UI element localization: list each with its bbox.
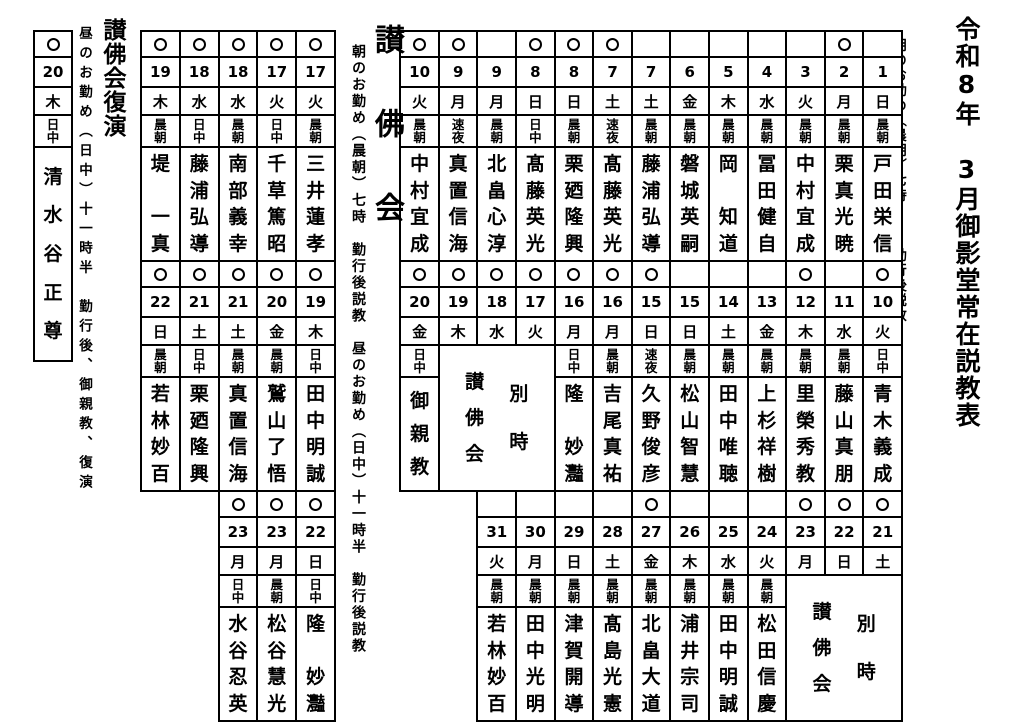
- date-cell: 15: [671, 288, 708, 316]
- sanbutsukai-note: 朝のお勤め（晨朝）七時 勤行後説教 昼のお勤め（日中）十一時半 勤行後説教: [348, 44, 368, 714]
- circle-icon: [838, 38, 851, 51]
- char: 夜: [645, 361, 658, 375]
- char: 井: [680, 641, 699, 661]
- service-time-cell: 晨朝: [710, 116, 747, 146]
- page-title: 令和8年 3月御影堂常在説教表: [948, 16, 984, 716]
- char: 冨: [757, 154, 776, 174]
- duty-marker-cell: [749, 32, 786, 56]
- date-cell: 23: [220, 518, 257, 546]
- schedule-block: 21土22日23月24火晨朝松田信慶25水晨朝田中明誠26木晨朝浦井宗司27金晨…: [476, 490, 903, 722]
- char: 日: [47, 118, 60, 132]
- service-time-cell: 日中: [35, 116, 71, 146]
- char: 畠: [487, 181, 506, 201]
- circle-icon: [529, 38, 542, 51]
- char: 唯: [719, 437, 738, 457]
- char: 夜: [606, 131, 619, 145]
- date-cell: 5: [710, 58, 747, 86]
- date-cell: 17: [297, 58, 334, 86]
- preacher-name-cell: 隆 妙灩: [297, 608, 334, 720]
- circle-icon: [645, 498, 658, 511]
- schedule-block: 19木日中田中明誠20金晨朝鷲山了悟21土晨朝真置信海21土日中栗廼隆興22日晨…: [140, 260, 336, 492]
- date-cell: 24: [749, 518, 786, 546]
- char: 英: [680, 207, 699, 227]
- char: 晨: [761, 118, 774, 132]
- char: 松: [267, 614, 286, 634]
- weekday-cell: 土: [181, 318, 218, 344]
- service-time-cell: 日中: [401, 346, 438, 376]
- char: 久: [642, 384, 661, 404]
- weekday-cell: 日: [671, 318, 708, 344]
- char: 別: [509, 384, 528, 404]
- preacher-name-cell: 吉尾真祐: [594, 378, 631, 490]
- service-time-cell: 晨朝: [594, 346, 631, 376]
- weekday-cell: 月: [517, 548, 554, 574]
- char: 晨: [799, 348, 812, 362]
- char: 朝: [722, 131, 735, 145]
- char: 晨: [722, 118, 735, 132]
- date-cell: 20: [401, 288, 438, 316]
- char: 会: [465, 444, 484, 464]
- char: 真: [229, 384, 248, 404]
- preacher-name-cell: 中村宜成: [787, 148, 824, 260]
- merged-event-cell: 別時讃佛会: [440, 346, 554, 490]
- char: 晨: [529, 578, 542, 592]
- weekday-cell: 火: [258, 88, 295, 114]
- duty-marker-cell: [710, 262, 747, 286]
- service-time-cell: 晨朝: [826, 116, 863, 146]
- weekday-cell: 日: [633, 318, 670, 344]
- char: 晨: [645, 118, 658, 132]
- char: 彦: [642, 464, 661, 484]
- service-time-cell: 日中: [258, 116, 295, 146]
- weekday-cell: 水: [710, 548, 747, 574]
- duty-marker-cell: [478, 32, 515, 56]
- char: 田: [757, 181, 776, 201]
- char: 中: [529, 131, 542, 145]
- service-time-cell: 日中: [297, 576, 334, 606]
- char: 中: [232, 591, 245, 605]
- char: 中: [193, 131, 206, 145]
- duty-marker-cell: [142, 32, 179, 56]
- char: 晨: [568, 578, 581, 592]
- char: 晨: [271, 578, 284, 592]
- char: 磐: [680, 154, 699, 174]
- preacher-name-cell: 三井蓮孝: [297, 148, 334, 260]
- duty-marker-cell: [594, 492, 631, 516]
- char: 朝: [529, 591, 542, 605]
- char: 朝: [309, 131, 322, 145]
- char: 秀: [796, 437, 815, 457]
- circle-icon: [452, 38, 465, 51]
- char: 佛: [812, 638, 831, 658]
- duty-marker-cell: [478, 262, 515, 286]
- service-time-cell: 晨朝: [258, 576, 295, 606]
- preacher-name-cell: 若林妙百: [478, 608, 515, 720]
- date-cell: 3: [787, 58, 824, 86]
- char: 置: [229, 411, 248, 431]
- char: 髙: [603, 614, 622, 634]
- service-time-cell: 晨朝: [556, 116, 593, 146]
- date-cell: 13: [749, 288, 786, 316]
- weekday-cell: 月: [478, 88, 515, 114]
- merged-event-cell: 別時讃佛会: [787, 576, 901, 720]
- char: 祥: [757, 437, 776, 457]
- char: 朋: [835, 464, 854, 484]
- char: 朝: [491, 131, 504, 145]
- char: 朝: [838, 361, 851, 375]
- duty-marker-cell: [297, 32, 334, 56]
- char: 尾: [603, 411, 622, 431]
- char: 晨: [876, 118, 889, 132]
- char: 親: [410, 424, 429, 444]
- service-time-cell: 晨朝: [671, 576, 708, 606]
- preacher-name-cell: 青木義成: [864, 378, 901, 490]
- circle-icon: [47, 38, 60, 51]
- weekday-cell: 水: [478, 318, 515, 344]
- duty-marker-cell: [671, 262, 708, 286]
- char: 千: [267, 154, 286, 174]
- char: 海: [229, 464, 248, 484]
- char: 三: [306, 154, 325, 174]
- char: 朝: [154, 361, 167, 375]
- date-cell: 8: [517, 58, 554, 86]
- char: 開: [564, 667, 583, 687]
- date-cell: 1: [864, 58, 901, 86]
- char: 誠: [306, 464, 325, 484]
- preacher-name-cell: 清水谷正尊: [35, 148, 71, 360]
- preacher-name-cell: 磐城英嗣: [671, 148, 708, 260]
- weekday-cell: 日: [556, 548, 593, 574]
- circle-icon: [567, 38, 580, 51]
- char: 藤: [642, 154, 661, 174]
- circle-icon: [838, 498, 851, 511]
- date-cell: 2: [826, 58, 863, 86]
- char: 津: [564, 614, 583, 634]
- char: 晨: [232, 118, 245, 132]
- char: 晨: [606, 348, 619, 362]
- char: 義: [229, 207, 248, 227]
- weekday-cell: 月: [440, 88, 477, 114]
- service-time-cell: 日中: [220, 576, 257, 606]
- char: 田: [757, 641, 776, 661]
- char: 髙: [526, 154, 545, 174]
- char: 朝: [413, 131, 426, 145]
- weekday-cell: 金: [749, 318, 786, 344]
- char: 畠: [642, 641, 661, 661]
- date-cell: 7: [594, 58, 631, 86]
- char: 朝: [606, 591, 619, 605]
- weekday-cell: 火: [517, 318, 554, 344]
- char: 英: [526, 207, 545, 227]
- weekday-cell: 木: [142, 88, 179, 114]
- preacher-name-cell: 北畠大道: [633, 608, 670, 720]
- char: 一: [151, 207, 170, 227]
- service-time-cell: 晨朝: [297, 116, 334, 146]
- weekday-cell: 月: [220, 548, 257, 574]
- circle-icon: [876, 268, 889, 281]
- preacher-name-cell: 松山智慧: [671, 378, 708, 490]
- weekday-cell: 日: [826, 548, 863, 574]
- char: 中: [796, 154, 815, 174]
- char: 光: [526, 667, 545, 687]
- char: 光: [267, 694, 286, 714]
- duty-marker-cell: [297, 492, 334, 516]
- duty-marker-cell: [220, 262, 257, 286]
- char: 誠: [719, 694, 738, 714]
- date-cell: 23: [258, 518, 295, 546]
- char: 廼: [190, 411, 209, 431]
- duty-marker-cell: [478, 492, 515, 516]
- date-cell: 14: [710, 288, 747, 316]
- service-time-cell: 晨朝: [787, 116, 824, 146]
- char: 中: [568, 361, 581, 375]
- char: 朝: [645, 591, 658, 605]
- char: 青: [873, 384, 892, 404]
- char: 田: [526, 614, 545, 634]
- weekday-cell: 日: [517, 88, 554, 114]
- char: 佛: [465, 408, 484, 428]
- duty-marker-cell: [35, 32, 71, 56]
- weekday-cell: 金: [633, 548, 670, 574]
- char: 鷲: [267, 384, 286, 404]
- date-cell: 19: [297, 288, 334, 316]
- duty-marker-cell: [142, 262, 179, 286]
- char: 日: [193, 348, 206, 362]
- service-time-cell: 晨朝: [671, 116, 708, 146]
- char: 興: [564, 234, 583, 254]
- char: 宜: [410, 207, 429, 227]
- char: 朝: [876, 131, 889, 145]
- char: 英: [229, 694, 248, 714]
- char: 中: [719, 411, 738, 431]
- char: 明: [719, 667, 738, 687]
- circle-icon: [270, 38, 283, 51]
- char: [306, 641, 325, 661]
- char: [719, 181, 738, 201]
- date-cell: 21: [864, 518, 901, 546]
- preacher-name-cell: 津賀開導: [556, 608, 593, 720]
- preacher-name-cell: 栗廼隆興: [181, 378, 218, 490]
- date-cell: 18: [478, 288, 515, 316]
- duty-marker-cell: [556, 262, 593, 286]
- char: 中: [309, 361, 322, 375]
- char: 隆: [564, 384, 583, 404]
- date-cell: 10: [864, 288, 901, 316]
- date-cell: 20: [35, 58, 71, 86]
- service-time-cell: 晨朝: [258, 346, 295, 376]
- char: 朝: [761, 361, 774, 375]
- service-time-cell: 晨朝: [787, 346, 824, 376]
- char: 義: [873, 437, 892, 457]
- event-label: 讃佛会: [465, 356, 484, 480]
- char: 林: [151, 411, 170, 431]
- char: 若: [487, 614, 506, 634]
- weekday-cell: 土: [864, 548, 901, 574]
- char: 朝: [722, 591, 735, 605]
- char: 信: [873, 234, 892, 254]
- char: 晨: [761, 578, 774, 592]
- char: 朝: [799, 131, 812, 145]
- char: 正: [43, 283, 62, 303]
- char: 昭: [267, 234, 286, 254]
- weekday-cell: 金: [258, 318, 295, 344]
- char: 真: [449, 154, 468, 174]
- char: 夜: [452, 131, 465, 145]
- char: 忍: [229, 667, 248, 687]
- char: 晨: [568, 118, 581, 132]
- char: 堤: [151, 154, 170, 174]
- duty-marker-cell: [633, 262, 670, 286]
- circle-icon: [232, 498, 245, 511]
- date-cell: 23: [787, 518, 824, 546]
- duty-marker-cell: [864, 32, 901, 56]
- char: 晨: [683, 118, 696, 132]
- char: 草: [267, 181, 286, 201]
- char: 朝: [232, 361, 245, 375]
- preacher-name-cell: 浦井宗司: [671, 608, 708, 720]
- char: 朝: [683, 591, 696, 605]
- preacher-name-cell: 御親教: [401, 378, 438, 490]
- char: 朝: [683, 131, 696, 145]
- char: 時: [509, 432, 528, 452]
- char: 大: [642, 667, 661, 687]
- char: 朝: [799, 361, 812, 375]
- preacher-name-cell: 冨田健自: [749, 148, 786, 260]
- char: 了: [267, 437, 286, 457]
- char: 御: [410, 391, 429, 411]
- char: 藤: [603, 181, 622, 201]
- preacher-name-cell: 田中光明: [517, 608, 554, 720]
- char: 隆: [564, 207, 583, 227]
- date-cell: 9: [440, 58, 477, 86]
- date-cell: 27: [633, 518, 670, 546]
- char: 朝: [271, 591, 284, 605]
- service-time-cell: 晨朝: [749, 576, 786, 606]
- preacher-name-cell: 田中明誠: [710, 608, 747, 720]
- date-cell: 15: [633, 288, 670, 316]
- char: 野: [642, 411, 661, 431]
- char: 晨: [645, 578, 658, 592]
- duty-marker-cell: [556, 32, 593, 56]
- char: 藤: [835, 384, 854, 404]
- char: 成: [873, 464, 892, 484]
- preacher-name-cell: 上杉祥樹: [749, 378, 786, 490]
- duty-marker-cell: [787, 32, 824, 56]
- char: 妙: [487, 667, 506, 687]
- char: 教: [796, 464, 815, 484]
- char: 南: [229, 154, 248, 174]
- circle-icon: [452, 268, 465, 281]
- service-time-cell: 晨朝: [826, 346, 863, 376]
- service-time-cell: 晨朝: [633, 116, 670, 146]
- char: 田: [719, 614, 738, 634]
- weekday-cell: 土: [633, 88, 670, 114]
- char: 北: [642, 614, 661, 634]
- char: 道: [642, 694, 661, 714]
- date-cell: 17: [517, 288, 554, 316]
- weekday-cell: 火: [749, 548, 786, 574]
- char: 置: [449, 181, 468, 201]
- schedule-block: 10火日中青木義成11水晨朝藤山真朋12木晨朝里榮秀教13金晨朝上杉祥樹14土晨…: [399, 260, 903, 492]
- char: 時: [857, 662, 876, 682]
- duty-marker-cell: [220, 32, 257, 56]
- char: 真: [151, 234, 170, 254]
- fukuen-note: 昼のお勤め（日中）十一時半 勤行後、御親教、復演: [74, 26, 94, 716]
- char: 晨: [683, 348, 696, 362]
- char: 尊: [43, 321, 62, 341]
- weekday-cell: 火: [478, 548, 515, 574]
- char: 城: [680, 181, 699, 201]
- char: 海: [449, 234, 468, 254]
- date-cell: 9: [478, 58, 515, 86]
- date-cell: 22: [297, 518, 334, 546]
- char: 浦: [680, 614, 699, 634]
- char: 自: [757, 234, 776, 254]
- char: 慶: [757, 694, 776, 714]
- char: 速: [452, 118, 465, 132]
- char: 導: [190, 234, 209, 254]
- char: 篤: [267, 207, 286, 227]
- char: 栗: [564, 154, 583, 174]
- char: 村: [410, 181, 429, 201]
- date-cell: 19: [440, 288, 477, 316]
- duty-marker-cell: [671, 492, 708, 516]
- char: 浦: [190, 181, 209, 201]
- char: 真: [835, 181, 854, 201]
- preacher-name-cell: 南部義幸: [220, 148, 257, 260]
- char: 光: [603, 667, 622, 687]
- date-cell: 30: [517, 518, 554, 546]
- service-time-cell: 晨朝: [478, 576, 515, 606]
- char: 山: [835, 411, 854, 431]
- char: 中: [193, 361, 206, 375]
- preacher-name-cell: 水谷忍英: [220, 608, 257, 720]
- weekday-cell: 月: [556, 318, 593, 344]
- duty-marker-cell: [633, 492, 670, 516]
- char: 若: [151, 384, 170, 404]
- char: 中: [309, 591, 322, 605]
- preacher-name-cell: 藤山真朋: [826, 378, 863, 490]
- char: 中: [271, 131, 284, 145]
- duty-marker-cell: [258, 262, 295, 286]
- duty-marker-cell: [181, 32, 218, 56]
- char: 日: [271, 118, 284, 132]
- char: 妙: [564, 437, 583, 457]
- char: 蓮: [306, 207, 325, 227]
- char: 信: [229, 437, 248, 457]
- schedule-block: 22日日中隆 妙灩23月晨朝松谷慧光23月日中水谷忍英: [218, 490, 336, 722]
- preacher-name-cell: 堤 一真: [142, 148, 179, 260]
- char: 中: [47, 131, 60, 145]
- char: 日: [876, 348, 889, 362]
- char: 嗣: [680, 234, 699, 254]
- date-cell: 22: [826, 518, 863, 546]
- preacher-name-cell: 藤浦弘導: [633, 148, 670, 260]
- char: 谷: [267, 641, 286, 661]
- preacher-name-cell: 久野俊彦: [633, 378, 670, 490]
- char: 淳: [487, 234, 506, 254]
- date-cell: 20: [258, 288, 295, 316]
- weekday-cell: 月: [787, 548, 824, 574]
- char: 田: [873, 181, 892, 201]
- char: 灩: [564, 464, 583, 484]
- char: 朝: [491, 591, 504, 605]
- circle-icon: [876, 498, 889, 511]
- service-time-cell: 晨朝: [517, 576, 554, 606]
- char: [151, 181, 170, 201]
- preacher-name-cell: 真置信海: [440, 148, 477, 260]
- service-time-cell: 日中: [181, 116, 218, 146]
